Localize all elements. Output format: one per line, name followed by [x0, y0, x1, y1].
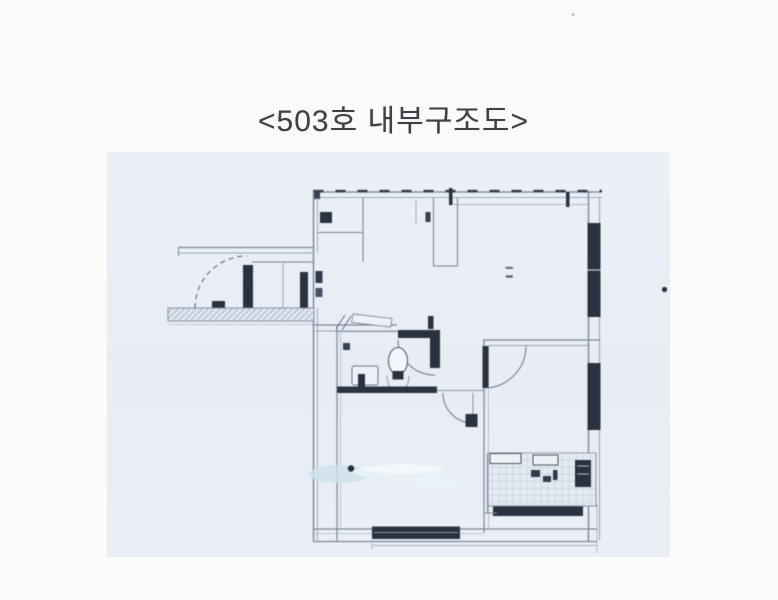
stove	[575, 460, 591, 487]
step-hatch-marks	[336, 315, 351, 330]
scan-speck	[571, 13, 575, 16]
scanned-floorplan-image: ▪▪▪▪ ▪▪▪	[107, 152, 670, 557]
closet-nook	[318, 198, 363, 262]
room-label-line1: ▪▪▪▪	[483, 265, 535, 272]
entrance-door-swing-arc	[195, 256, 247, 308]
room-label-line2: ▪▪▪	[483, 272, 535, 281]
page-title: <503호 내부구조도>	[258, 96, 529, 140]
left-wall-frame-marks	[316, 271, 323, 297]
entry-hall-wall	[313, 314, 434, 542]
entrance-balcony	[168, 247, 314, 325]
balcony-hatch-band	[168, 308, 314, 321]
bedroom-door-leaf	[483, 346, 489, 388]
bathroom-door-leaf	[430, 338, 440, 368]
bathroom	[337, 330, 484, 427]
scanned-document-page: { "page": { "background": "#fbfbfc" }, "…	[0, 0, 778, 600]
scan-smudges	[309, 464, 467, 488]
duct-partition	[416, 198, 458, 266]
entrance-door-leaf	[243, 265, 253, 310]
kitchen	[485, 453, 596, 513]
toilet	[389, 348, 408, 375]
floor-plan-drawing	[107, 152, 670, 557]
room-label: ▪▪▪▪ ▪▪▪	[483, 265, 535, 282]
bedroom-door-swing-arc	[484, 346, 526, 388]
